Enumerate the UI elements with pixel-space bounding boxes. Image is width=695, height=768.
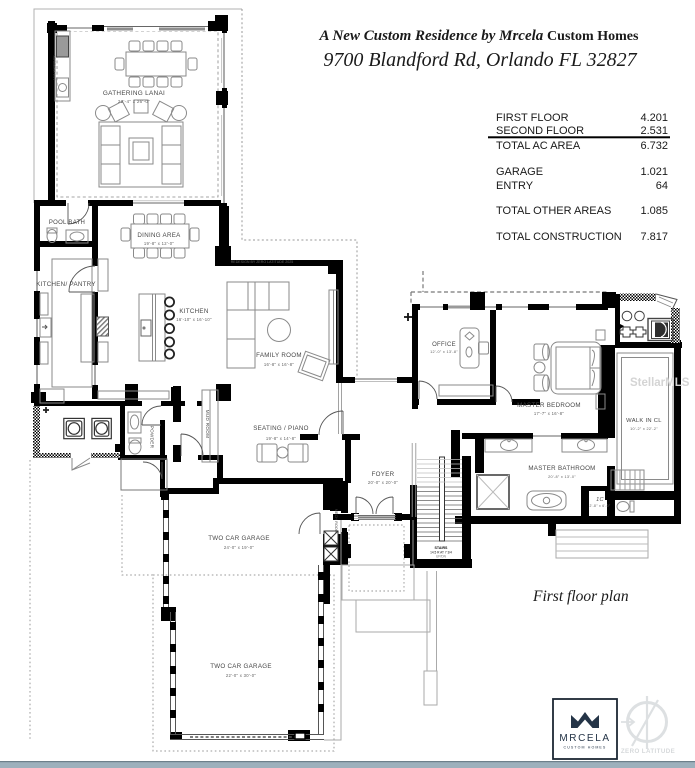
svg-text:SECOND FLOOR: SECOND FLOOR [496,125,584,137]
svg-text:2'-8" x 6'-0": 2'-8" x 6'-0" [590,504,611,508]
svg-text:A New Custom Residence by Mrce: A New Custom Residence by Mrcela Custom … [319,28,639,44]
svg-text:ENTRY: ENTRY [496,180,534,192]
svg-text:MASTER BATHROOM: MASTER BATHROOM [528,465,595,472]
svg-text:9700 Blandford Rd, Orlando FL: 9700 Blandford Rd, Orlando FL 32827 [323,49,637,71]
svg-text:KITCHEN: KITCHEN [179,308,208,315]
svg-text:20'-8" x 13'-0": 20'-8" x 13'-0" [548,475,576,479]
svg-text:22'-0" x 30'-0": 22'-0" x 30'-0" [226,673,256,678]
svg-text:POOL BATH: POOL BATH [49,220,85,226]
svg-text:REDESIGN BY ZERO LATITUDE 2025: REDESIGN BY ZERO LATITUDE 2025 [231,260,294,264]
svg-text:12'-0" x 13'-8": 12'-0" x 13'-8" [430,350,458,354]
svg-text:GATHERING LANAI: GATHERING LANAI [103,90,165,97]
svg-text:19'-8" x 12'-0": 19'-8" x 12'-0" [144,241,174,246]
svg-text:TOTAL AC AREA: TOTAL AC AREA [496,140,581,152]
svg-text:20'-0" x 20'-0": 20'-0" x 20'-0" [368,480,398,485]
svg-text:64: 64 [656,180,668,192]
svg-text:4.201: 4.201 [640,112,668,124]
svg-text:19'-8" x 14'-8": 19'-8" x 14'-8" [266,436,296,441]
svg-text:UP/DN: UP/DN [436,555,447,559]
svg-text:TOTAL OTHER AREAS: TOTAL OTHER AREAS [496,205,611,217]
svg-text:SEATING / PIANO: SEATING / PIANO [253,425,309,432]
svg-text:2.531: 2.531 [640,125,668,137]
svg-text:MECH ROOM: MECH ROOM [334,509,338,533]
svg-text:22'-4" x 26'-0": 22'-4" x 26'-0" [118,99,150,104]
svg-text:24'-0" x 19'-0": 24'-0" x 19'-0" [224,545,254,550]
svg-text:FOYER: FOYER [372,471,395,478]
svg-text:First floor plan: First floor plan [532,588,629,605]
svg-text:KITCHEN/ PANTRY: KITCHEN/ PANTRY [36,281,96,288]
svg-text:TOTAL CONSTRUCTION: TOTAL CONSTRUCTION [496,231,622,243]
svg-text:OFFICE: OFFICE [432,342,456,348]
svg-text:ZERO LATITUDE: ZERO LATITUDE [621,748,675,755]
svg-text:1C: 1C [596,497,604,503]
svg-text:16'-10" x 16'-10": 16'-10" x 16'-10" [176,317,212,322]
svg-text:TWO CAR GARAGE: TWO CAR GARAGE [210,663,272,670]
svg-text:DINING AREA: DINING AREA [137,232,181,239]
svg-text:16'-8" x 16'-8": 16'-8" x 16'-8" [264,362,294,367]
svg-text:TWO CAR GARAGE: TWO CAR GARAGE [208,535,270,542]
svg-text:FIRST FLOOR: FIRST FLOOR [496,112,569,124]
svg-text:StellarMLS: StellarMLS [630,377,690,389]
svg-text:CUSTOM HOMES: CUSTOM HOMES [564,746,607,750]
svg-text:MRCELA: MRCELA [559,733,610,744]
svg-text:POWDER: POWDER [150,426,155,449]
svg-text:SUMMER KIT: SUMMER KIT [52,55,56,81]
svg-text:MUD ROOM: MUD ROOM [205,410,210,438]
svg-text:WALK IN CL: WALK IN CL [626,418,662,424]
svg-text:STAIRS: STAIRS [435,546,449,550]
svg-text:FAMILY ROOM: FAMILY ROOM [256,352,302,359]
svg-text:17'-7" x 16'-8": 17'-7" x 16'-8" [534,411,564,416]
svg-text:6.732: 6.732 [640,140,668,152]
svg-text:7.817: 7.817 [640,231,668,243]
svg-text:GARAGE: GARAGE [496,166,543,178]
svg-text:10'-2" x 22'-2": 10'-2" x 22'-2" [630,427,658,431]
svg-text:MASTER BEDROOM: MASTER BEDROOM [517,402,581,409]
svg-text:1.021: 1.021 [640,166,668,178]
svg-text:1.085: 1.085 [640,205,668,217]
